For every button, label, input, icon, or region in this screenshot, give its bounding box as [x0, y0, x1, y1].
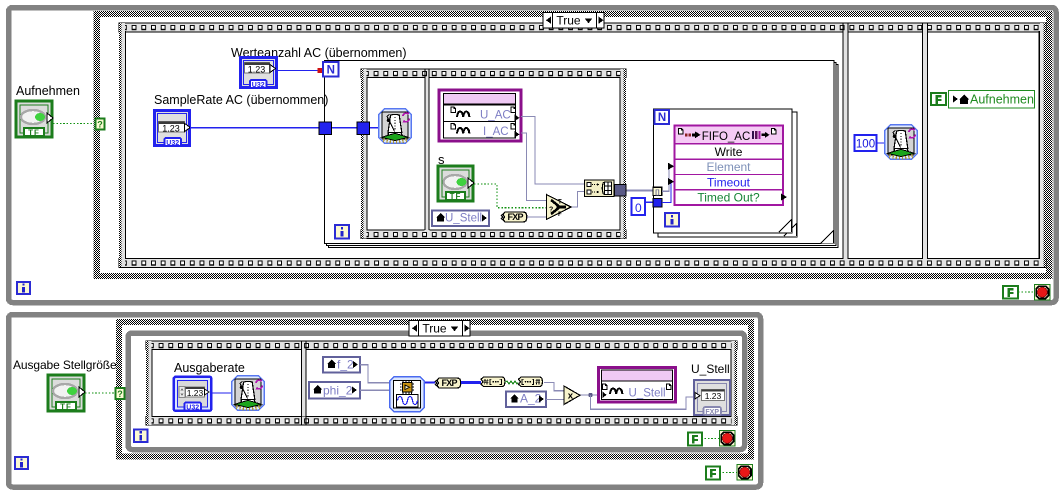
svg-text:Timeout: Timeout [707, 175, 751, 189]
svg-text:Write: Write [715, 145, 743, 159]
svg-text:FXP: FXP [705, 409, 719, 416]
svg-text:1.23: 1.23 [162, 124, 180, 134]
svg-text:N: N [327, 65, 335, 77]
svg-text:1.23: 1.23 [705, 391, 722, 401]
svg-text:TF: TF [450, 192, 462, 201]
svg-text:U32: U32 [252, 82, 265, 89]
svg-text:1.23: 1.23 [248, 65, 266, 75]
svg-text:U_AC: U_AC [480, 110, 511, 122]
svg-text:U_Stell: U_Stell [629, 388, 666, 400]
svg-text:Timed Out?: Timed Out? [697, 191, 760, 205]
svg-text:N: N [658, 112, 666, 124]
svg-text:f_2: f_2 [337, 358, 354, 372]
svg-text:?: ? [117, 389, 123, 399]
svg-text:U_Stell: U_Stell [691, 362, 730, 376]
svg-text:[]: [] [655, 189, 659, 196]
svg-text:True: True [556, 14, 581, 28]
svg-text:A_2: A_2 [520, 392, 542, 406]
svg-text:SampleRate AC (übernommen): SampleRate AC (übernommen) [154, 93, 328, 107]
svg-text:Element: Element [706, 160, 751, 174]
svg-text:phi_2: phi_2 [323, 384, 353, 398]
svg-text:Aufnehmen: Aufnehmen [970, 93, 1034, 107]
svg-text:Ausgaberate: Ausgaberate [174, 361, 245, 375]
svg-text:I_AC: I_AC [483, 126, 509, 138]
svg-text:Ausgabe Stellgröße: Ausgabe Stellgröße [13, 358, 117, 372]
svg-text:True: True [422, 322, 447, 336]
svg-text:U_Stell: U_Stell [445, 213, 482, 225]
svg-text:TF: TF [60, 403, 72, 412]
svg-text:TF: TF [28, 129, 40, 138]
svg-text:FIFO_AC: FIFO_AC [702, 131, 751, 143]
svg-text:1.23: 1.23 [187, 388, 204, 398]
svg-text:100: 100 [856, 139, 875, 151]
svg-text:U32: U32 [166, 140, 179, 147]
svg-text:?: ? [97, 120, 103, 130]
svg-text:U32: U32 [186, 405, 199, 412]
svg-text:0: 0 [635, 201, 642, 215]
svg-text:Aufnehmen: Aufnehmen [16, 84, 80, 98]
